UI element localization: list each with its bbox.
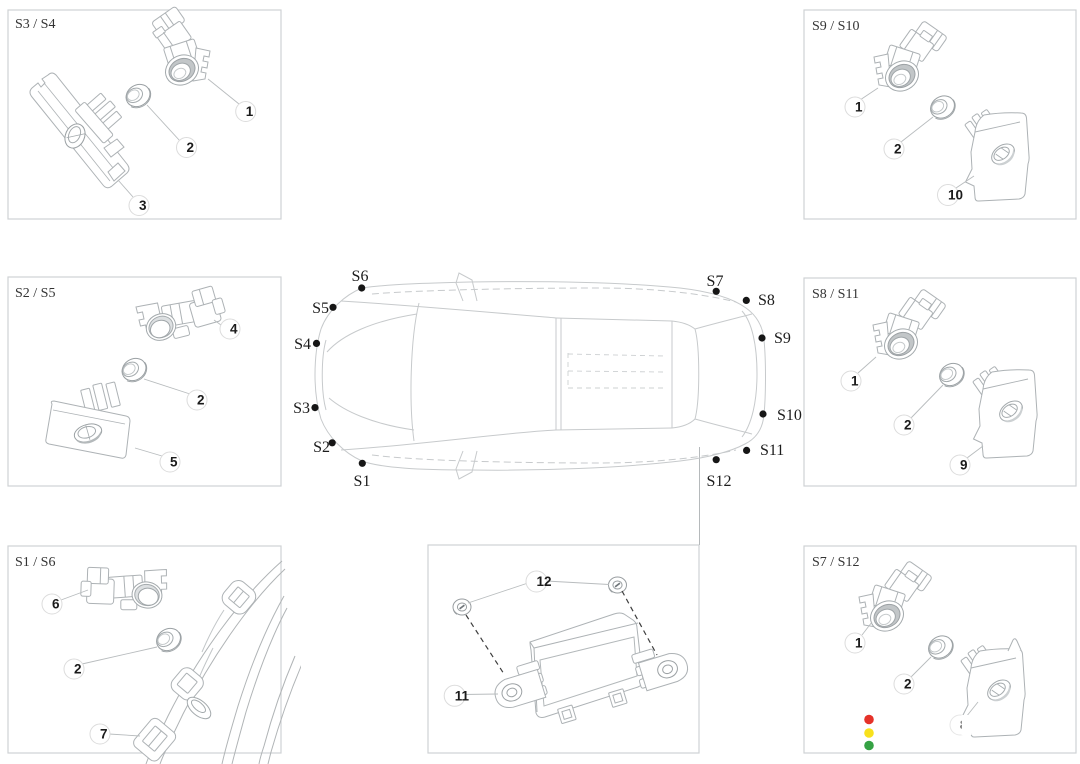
svg-text:7: 7 (100, 727, 108, 742)
svg-text:S10: S10 (777, 407, 802, 424)
svg-text:S2: S2 (313, 439, 330, 456)
svg-text:S4: S4 (294, 336, 311, 353)
svg-text:3: 3 (139, 198, 147, 213)
svg-text:S1: S1 (354, 473, 371, 490)
svg-text:S2 / S5: S2 / S5 (15, 286, 55, 301)
svg-text:2: 2 (904, 418, 912, 433)
svg-text:S11: S11 (760, 442, 784, 459)
svg-text:1: 1 (855, 636, 863, 651)
svg-text:11: 11 (455, 688, 470, 703)
svg-text:S8: S8 (758, 292, 775, 309)
svg-text:1: 1 (851, 374, 859, 389)
svg-text:S8 / S11: S8 / S11 (812, 287, 859, 302)
svg-text:10: 10 (948, 188, 963, 203)
svg-text:1: 1 (246, 104, 254, 119)
svg-text:S7: S7 (707, 273, 724, 290)
svg-text:S1 / S6: S1 / S6 (15, 555, 55, 570)
svg-text:2: 2 (197, 393, 205, 408)
svg-text:2: 2 (904, 677, 912, 692)
svg-text:S6: S6 (352, 268, 369, 285)
svg-text:S12: S12 (707, 473, 732, 490)
svg-text:2: 2 (187, 140, 195, 155)
svg-text:S3: S3 (293, 400, 310, 417)
svg-text:6: 6 (52, 597, 60, 612)
svg-text:12: 12 (537, 574, 552, 589)
svg-text:S7 / S12: S7 / S12 (812, 555, 859, 570)
svg-text:9: 9 (960, 458, 968, 473)
svg-text:5: 5 (170, 455, 178, 470)
svg-text:S9: S9 (774, 330, 791, 347)
svg-text:2: 2 (74, 662, 82, 677)
svg-text:S5: S5 (312, 300, 329, 317)
svg-text:4: 4 (230, 322, 238, 337)
svg-text:2: 2 (894, 142, 902, 157)
svg-text:S9 / S10: S9 / S10 (812, 19, 859, 34)
svg-text:1: 1 (855, 100, 863, 115)
svg-text:S3 / S4: S3 / S4 (15, 17, 55, 32)
